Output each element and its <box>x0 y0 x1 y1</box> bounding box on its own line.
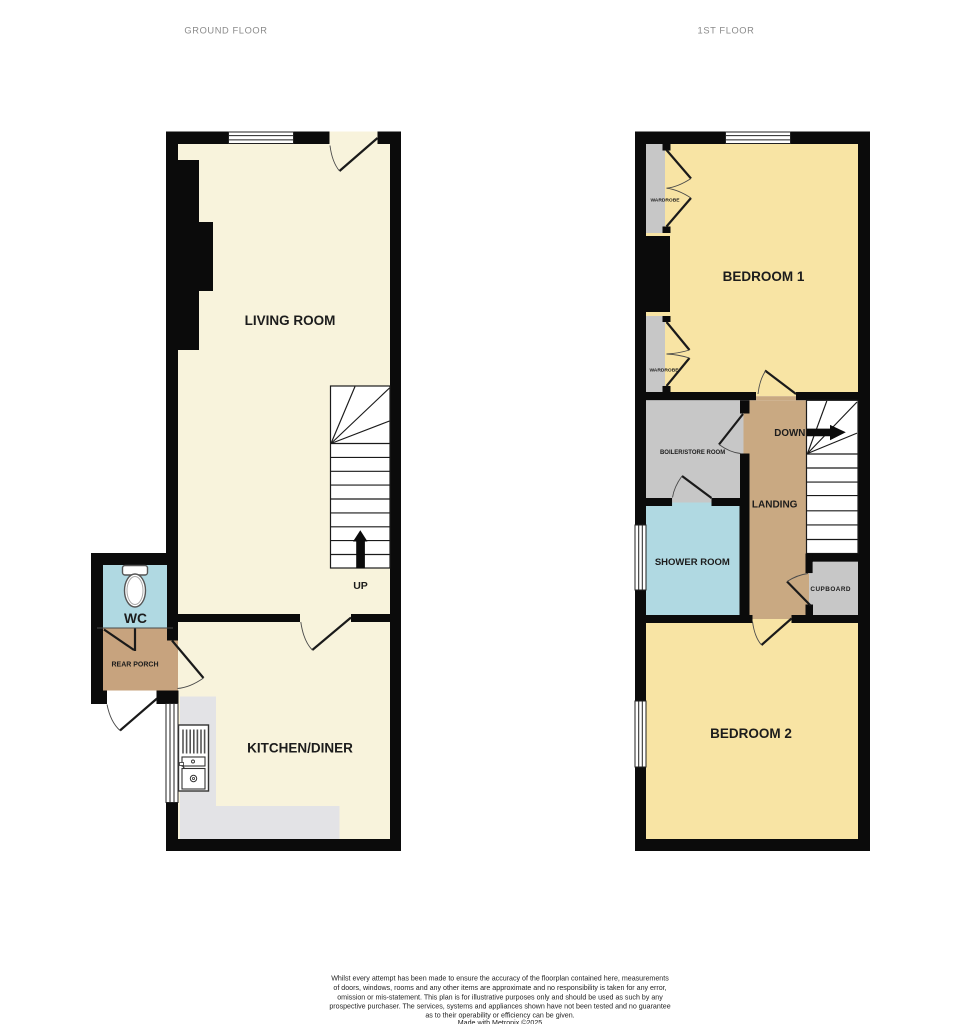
svg-text:GROUND FLOOR: GROUND FLOOR <box>184 26 267 36</box>
svg-text:SHOWER ROOM: SHOWER ROOM <box>655 557 730 568</box>
svg-text:BOILER/STORE ROOM: BOILER/STORE ROOM <box>660 450 725 456</box>
svg-text:BEDROOM 2: BEDROOM 2 <box>710 726 792 741</box>
svg-text:BEDROOM 1: BEDROOM 1 <box>723 269 805 284</box>
svg-text:LIVING ROOM: LIVING ROOM <box>245 313 336 328</box>
svg-text:WARDROBE: WARDROBE <box>649 368 679 374</box>
svg-text:WARDROBE: WARDROBE <box>650 198 680 204</box>
svg-text:CUPBOARD: CUPBOARD <box>810 586 851 593</box>
svg-text:KITCHEN/DINER: KITCHEN/DINER <box>247 741 353 756</box>
svg-text:Whilst every attempt has been: Whilst every attempt has been made to en… <box>331 975 669 983</box>
svg-text:Made with Metropix ©2025: Made with Metropix ©2025 <box>458 1019 543 1024</box>
svg-text:DOWN: DOWN <box>774 428 805 439</box>
svg-text:UP: UP <box>353 580 368 592</box>
svg-text:REAR PORCH: REAR PORCH <box>111 662 158 669</box>
svg-text:1ST FLOOR: 1ST FLOOR <box>698 26 755 36</box>
svg-text:prospective purchaser. The ser: prospective purchaser. The services, sys… <box>329 1002 670 1010</box>
svg-text:LANDING: LANDING <box>752 500 798 511</box>
svg-text:of doors, windows, rooms and a: of doors, windows, rooms and any other i… <box>333 984 666 992</box>
svg-text:omission or mis-statement. Thi: omission or mis-statement. This plan is … <box>337 994 663 1002</box>
svg-text:WC: WC <box>124 611 147 626</box>
